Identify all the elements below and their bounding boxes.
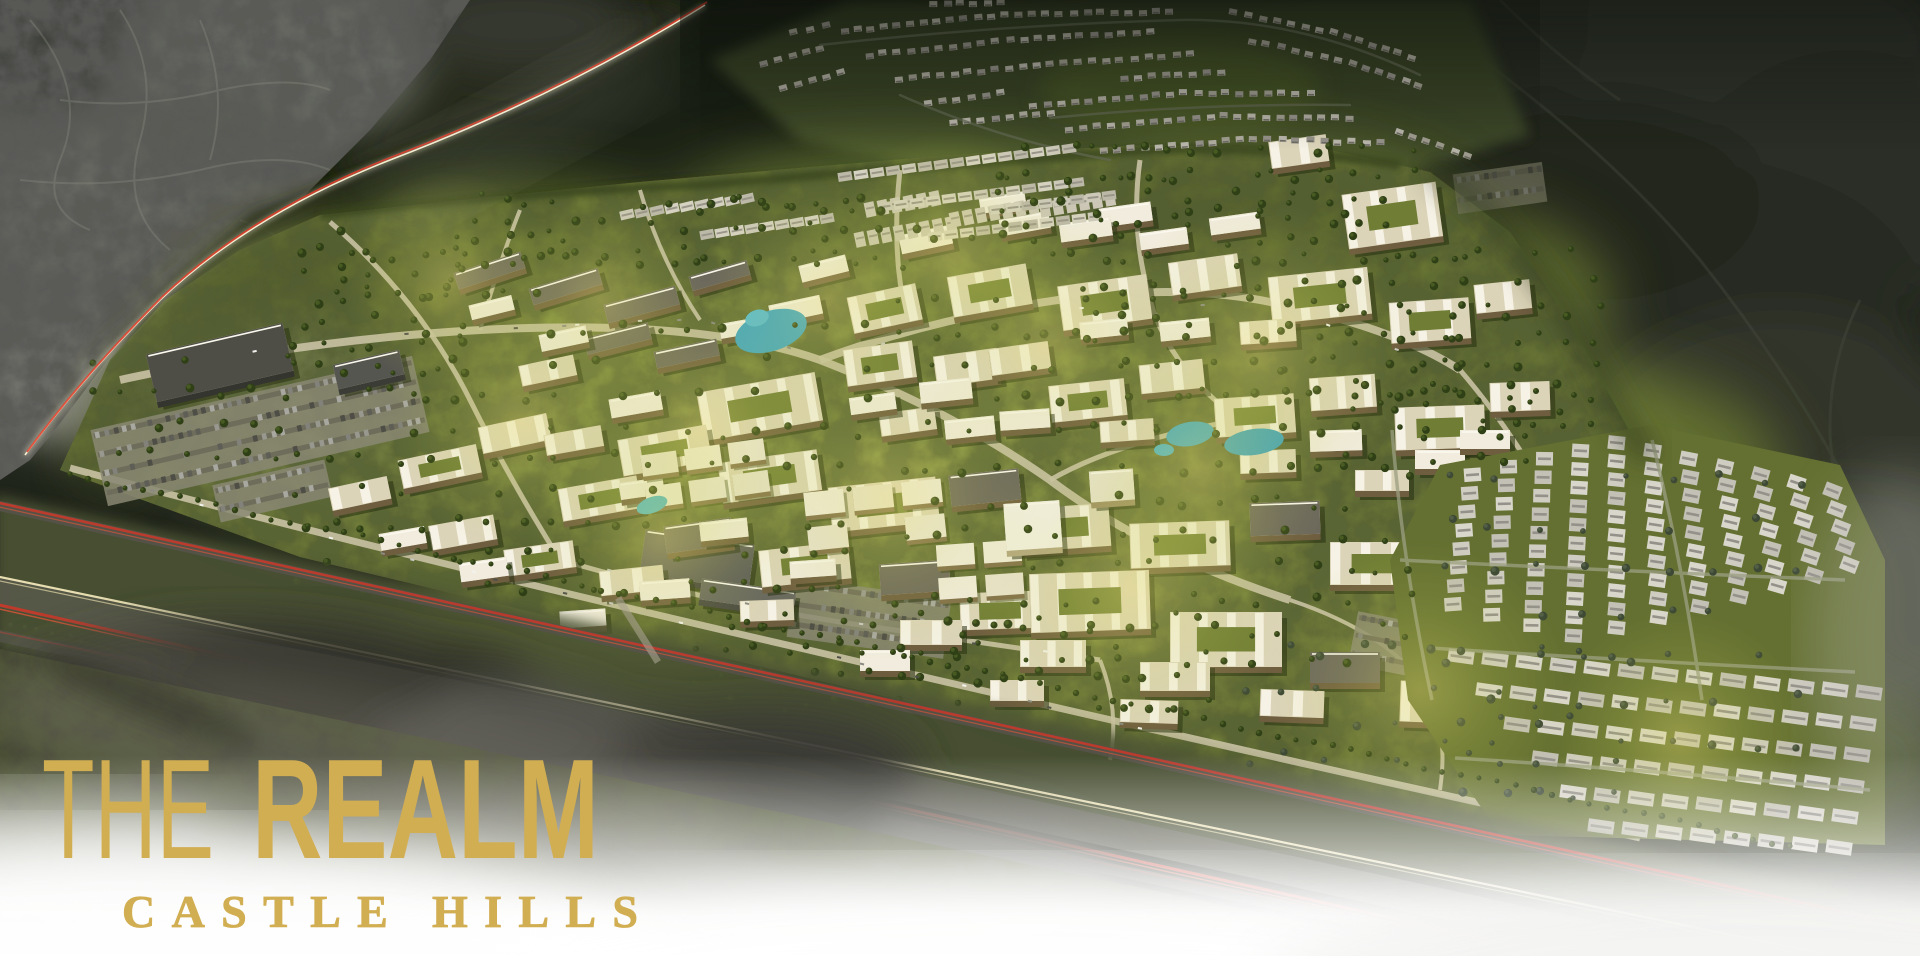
- svg-text:CASTLE HILLS: CASTLE HILLS: [122, 886, 652, 937]
- svg-text:REALM: REALM: [252, 730, 599, 889]
- svg-text:THE: THE: [42, 730, 214, 889]
